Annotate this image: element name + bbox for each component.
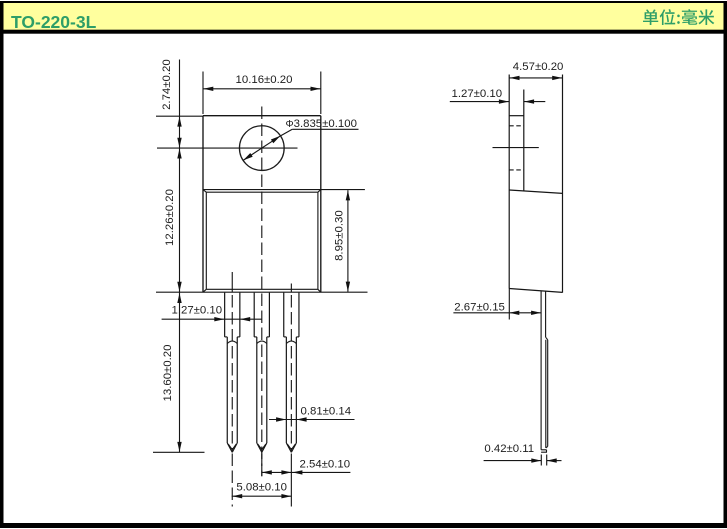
svg-text:0.81±0.14: 0.81±0.14 <box>301 406 352 418</box>
svg-text:TO-220-3L: TO-220-3L <box>11 12 97 32</box>
svg-text:10.16±0.20: 10.16±0.20 <box>236 74 293 86</box>
svg-text:Φ3.835±0.100: Φ3.835±0.100 <box>286 118 357 130</box>
svg-text:13.60±0.20: 13.60±0.20 <box>162 345 174 402</box>
svg-text:12.26±0.20: 12.26±0.20 <box>164 189 176 246</box>
svg-text:2.74±0.20: 2.74±0.20 <box>161 59 173 110</box>
svg-text:2.54±0.10: 2.54±0.10 <box>300 459 351 471</box>
svg-text:4.57±0.20: 4.57±0.20 <box>513 61 564 73</box>
svg-text:1.27±0.10: 1.27±0.10 <box>452 88 503 100</box>
svg-text:5.08±0.10: 5.08±0.10 <box>236 481 287 493</box>
svg-text:2.67±0.15: 2.67±0.15 <box>454 301 505 313</box>
svg-text:8.95±0.30: 8.95±0.30 <box>333 210 345 261</box>
svg-text:1.27±0.10: 1.27±0.10 <box>172 304 223 316</box>
svg-text:0.42±0.11: 0.42±0.11 <box>484 443 534 455</box>
